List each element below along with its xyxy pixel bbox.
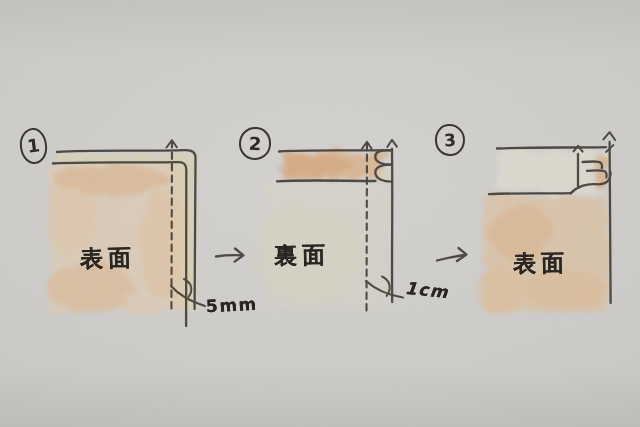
fabric-side-label-step3: 表面 [501, 247, 582, 279]
step-3-number: 3 [443, 131, 456, 149]
fabric-side-label-step2: 裏面 [262, 239, 343, 271]
step-2-number: 2 [248, 134, 261, 153]
measurement-label-5mm: 5mm [206, 294, 259, 317]
step-1-number: 1 [26, 136, 41, 155]
paper-grain [0, 0, 640, 427]
fabric-side-label-step1: 表面 [68, 242, 149, 275]
diagram-drawing [0, 0, 640, 427]
photo-canvas: 1 2 3 表面 裏面 表面 5mm 1cm [0, 0, 640, 427]
